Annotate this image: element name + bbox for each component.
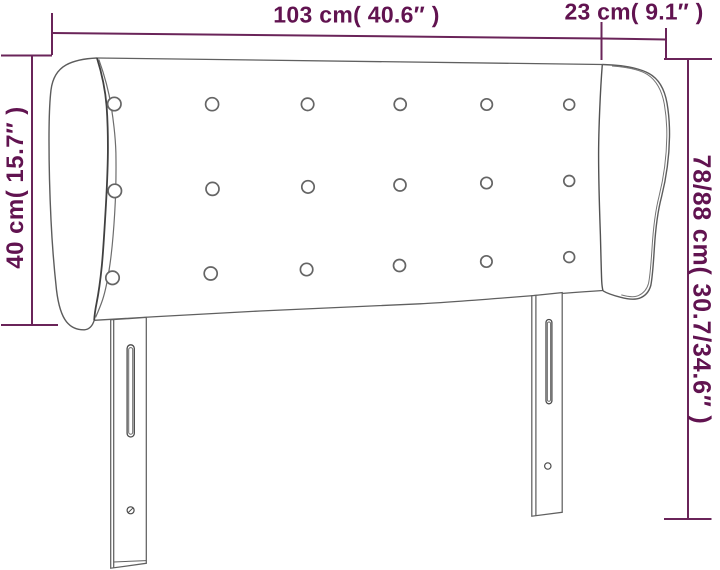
svg-text:103 cm( 40.6″ ): 103 cm( 40.6″ ) (273, 2, 439, 28)
svg-text:78/88 cm( 30.7/34.6″ ): 78/88 cm( 30.7/34.6″ ) (688, 154, 716, 424)
svg-text:40 cm( 15.7″ ): 40 cm( 15.7″ ) (2, 106, 29, 269)
svg-text:23 cm( 9.1″ ): 23 cm( 9.1″ ) (565, 0, 704, 25)
